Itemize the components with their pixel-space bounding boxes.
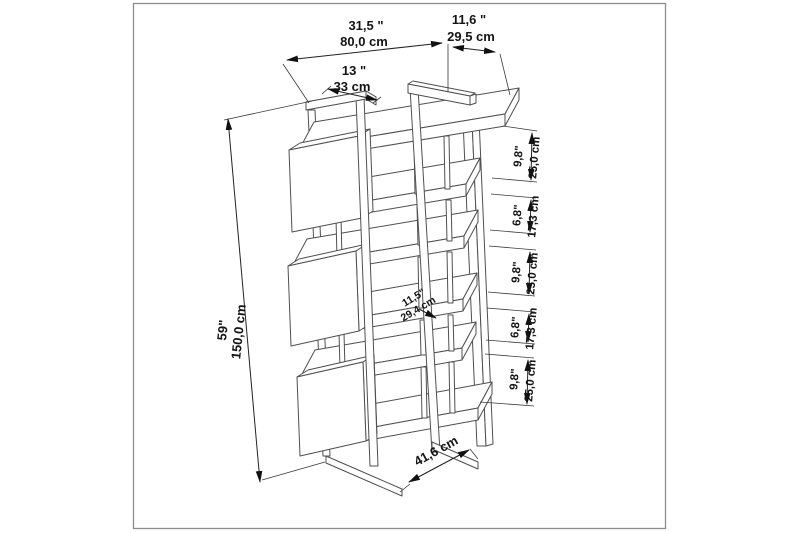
box-3-front [297,362,366,456]
gap3-inches: 9,8" [510,261,524,283]
box-2-front [288,251,359,346]
gap5-inches: 9,8" [508,368,522,390]
dim-height-inches: 59" [214,319,231,341]
gap4-inches: 6,8" [509,316,523,338]
dim-width-cm: 80,0 cm [340,34,388,49]
dim-width-inches: 31,5 " [348,18,383,33]
gap1-inches: 9,8" [512,145,526,167]
dimension-drawing: 31,5 " 80,0 cm 11,6 " 29,5 cm 13 " 33 cm… [0,0,800,533]
dim-depth-cm: 29,5 cm [447,29,495,44]
dim-topbox-inches: 13 " [342,63,366,78]
gap2-inches: 6,8" [511,204,525,226]
dim-depth-inches: 11,6 " [452,12,486,27]
box-1-front [289,136,362,232]
drawing-border [134,4,666,529]
dim-topbox-cm: 33 cm [334,79,371,94]
right-frame-bridge-end [470,94,476,105]
drawing-page: 31,5 " 80,0 cm 11,6 " 29,5 cm 13 " 33 cm… [0,0,800,533]
